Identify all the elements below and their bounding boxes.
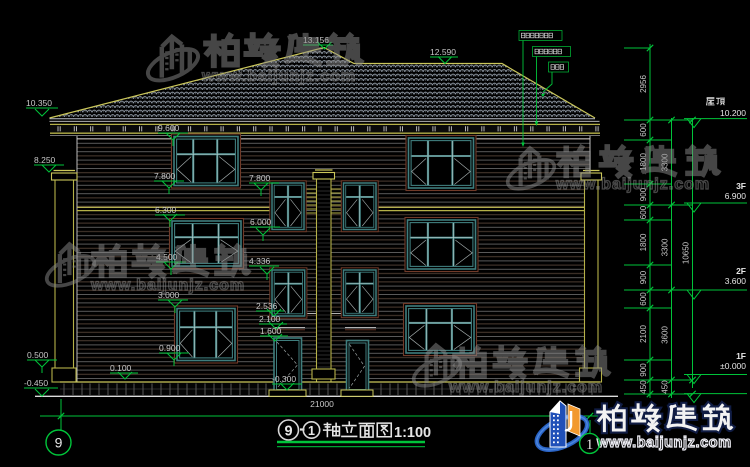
svg-text:8.250: 8.250: [34, 155, 56, 165]
svg-text:-0.450: -0.450: [24, 378, 48, 388]
svg-text:www.baijunjz.com: www.baijunjz.com: [555, 176, 710, 193]
svg-text:900: 900: [639, 363, 648, 377]
svg-text:1:100: 1:100: [394, 425, 431, 441]
svg-text:9: 9: [55, 435, 63, 451]
svg-text:6.000: 6.000: [250, 217, 272, 227]
svg-text:7.800: 7.800: [154, 171, 176, 181]
svg-text:±0.000: ±0.000: [720, 361, 746, 371]
svg-text:10.200: 10.200: [720, 108, 746, 118]
svg-text:www.baijunjz.com: www.baijunjz.com: [90, 277, 245, 294]
svg-text:0.100: 0.100: [110, 363, 132, 373]
svg-text:2.536: 2.536: [256, 301, 278, 311]
svg-text:450: 450: [661, 380, 670, 394]
svg-text:1.600: 1.600: [260, 326, 282, 336]
svg-text:0.900: 0.900: [159, 343, 181, 353]
svg-text:600: 600: [639, 205, 648, 219]
svg-text:1F: 1F: [736, 351, 746, 361]
svg-text:10650: 10650: [682, 241, 691, 264]
svg-text:6.300: 6.300: [155, 205, 177, 215]
svg-text:www.baijunjz.com: www.baijunjz.com: [596, 435, 732, 451]
svg-text:3.600: 3.600: [725, 276, 747, 286]
svg-text:12.590: 12.590: [430, 47, 456, 57]
svg-text:9.600: 9.600: [158, 123, 180, 133]
svg-text:900: 900: [639, 270, 648, 284]
svg-text:3F: 3F: [736, 181, 746, 191]
svg-text:6.900: 6.900: [725, 191, 747, 201]
svg-text:7.800: 7.800: [249, 173, 271, 183]
svg-text:600: 600: [639, 123, 648, 137]
svg-text:450: 450: [639, 380, 648, 394]
svg-text:0.500: 0.500: [27, 350, 49, 360]
svg-text:www.baijunjz.com: www.baijunjz.com: [448, 379, 603, 396]
svg-text:2956: 2956: [639, 75, 648, 93]
svg-text:9: 9: [284, 424, 292, 440]
svg-text:1: 1: [308, 424, 315, 438]
svg-text:www.baijunjz.com: www.baijunjz.com: [201, 68, 356, 85]
svg-text:2100: 2100: [639, 325, 648, 343]
svg-text:21000: 21000: [310, 399, 334, 409]
svg-text:3600: 3600: [661, 326, 670, 344]
svg-text:-0.300: -0.300: [272, 374, 296, 384]
svg-text:4.336: 4.336: [249, 256, 271, 266]
svg-text:10.350: 10.350: [26, 98, 52, 108]
svg-text:2F: 2F: [736, 266, 746, 276]
svg-text:1800: 1800: [639, 233, 648, 251]
svg-text:1: 1: [586, 437, 594, 453]
svg-text:3300: 3300: [661, 238, 670, 256]
svg-text:600: 600: [639, 292, 648, 306]
